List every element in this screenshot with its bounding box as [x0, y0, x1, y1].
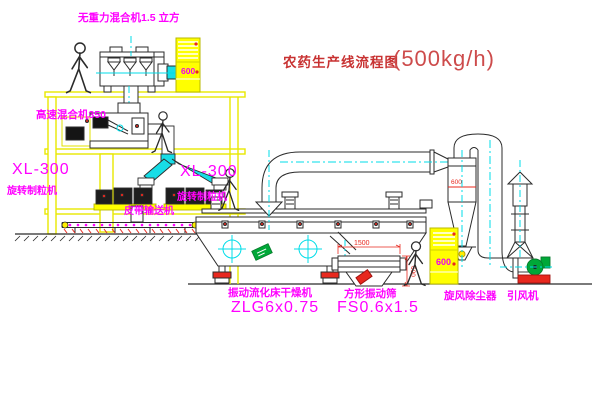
person-roof: [67, 43, 91, 93]
exhaust-stack: [507, 160, 533, 272]
diagram-title: 农药生产线流程图: [283, 51, 399, 71]
control-cabinet-top: [176, 38, 200, 92]
cabinet-top-panel-text: 600: [181, 66, 195, 76]
label-belt-conveyor: 皮带输送机: [124, 207, 174, 217]
label-gravity-mixer: 无重力混合机1.5 立方: [78, 13, 180, 24]
label-dryer-model: ZLG6x0.75: [231, 300, 319, 316]
control-cabinet-right: [430, 228, 458, 284]
diagram-capacity: (500kg/h): [393, 46, 495, 72]
indicator-light: [452, 232, 455, 235]
label-dryer-name: 振动流化床干燥机: [228, 288, 312, 299]
label-granulator-left-model: XL-300: [12, 162, 70, 178]
label-fan: 引风机: [507, 291, 539, 302]
label-sieve-model: FS0.6x1.5: [337, 300, 419, 316]
label-high-speed-mixer: 高速混合机350: [36, 110, 106, 121]
cabinet-right-panel-text: 600: [436, 257, 451, 267]
indicator-light: [194, 42, 197, 45]
exhaust-duct: [262, 150, 452, 188]
dryer-legs: [213, 266, 339, 283]
label-cyclone: 旋风除尘器: [444, 291, 497, 302]
indicator-light: [195, 70, 198, 73]
belt-conveyor: [62, 222, 198, 233]
conveyor-rollers: [69, 224, 192, 227]
cyclone-dimension: 600: [451, 179, 462, 186]
label-granulator-left-name: 旋转制粒机: [7, 187, 57, 197]
sieve-length-dimension: 1500: [354, 240, 370, 247]
label-granulator-right-model: XL-300: [180, 164, 238, 180]
label-sieve-name: 方形振动筛: [344, 289, 397, 300]
indicator-light: [452, 262, 455, 265]
label-granulator-right-name: 旋转制粒机: [177, 193, 227, 203]
dryer-ports: [208, 192, 402, 209]
pesticide-line-diagram: 600: [0, 0, 600, 403]
